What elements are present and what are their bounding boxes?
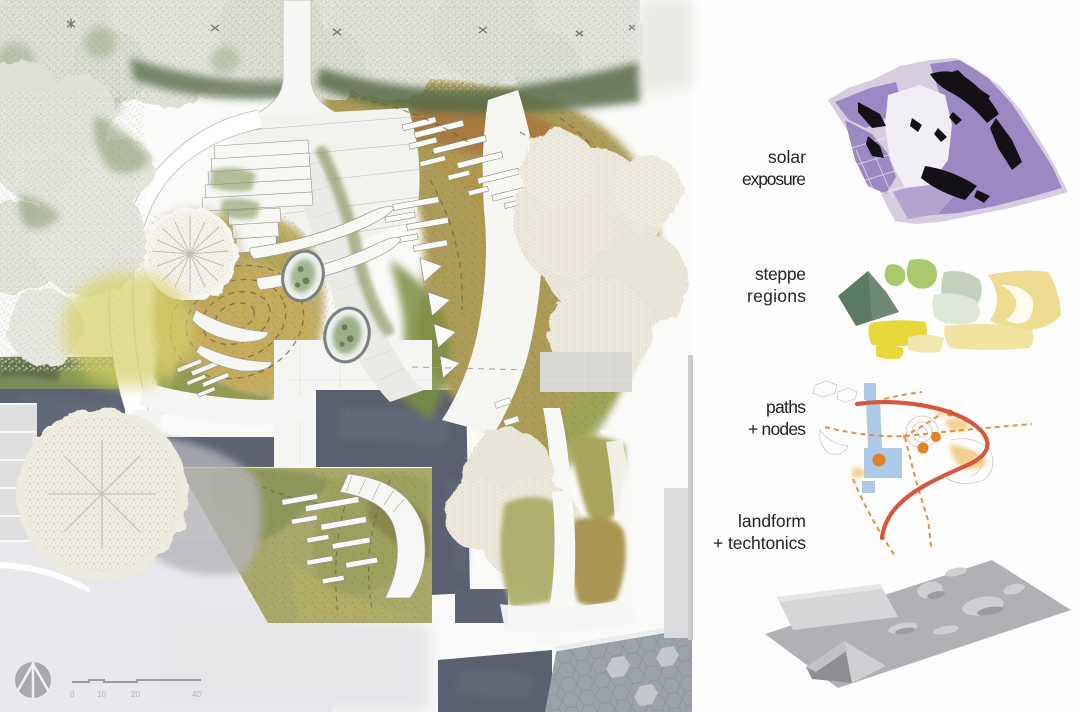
svg-text:exposure: exposure — [742, 169, 806, 189]
svg-text:landform: landform — [738, 511, 806, 531]
svg-text:+ techtonics: + techtonics — [713, 533, 806, 553]
svg-text:paths: paths — [766, 397, 806, 417]
svg-text:40': 40' — [192, 690, 203, 699]
svg-text:20: 20 — [131, 690, 140, 699]
svg-text:regions: regions — [747, 286, 806, 306]
svg-text:+ nodes: + nodes — [748, 419, 806, 439]
svg-text:10: 10 — [97, 690, 106, 699]
svg-text:steppe: steppe — [755, 264, 806, 284]
svg-text:solar: solar — [768, 147, 806, 167]
svg-text:0: 0 — [70, 690, 75, 699]
